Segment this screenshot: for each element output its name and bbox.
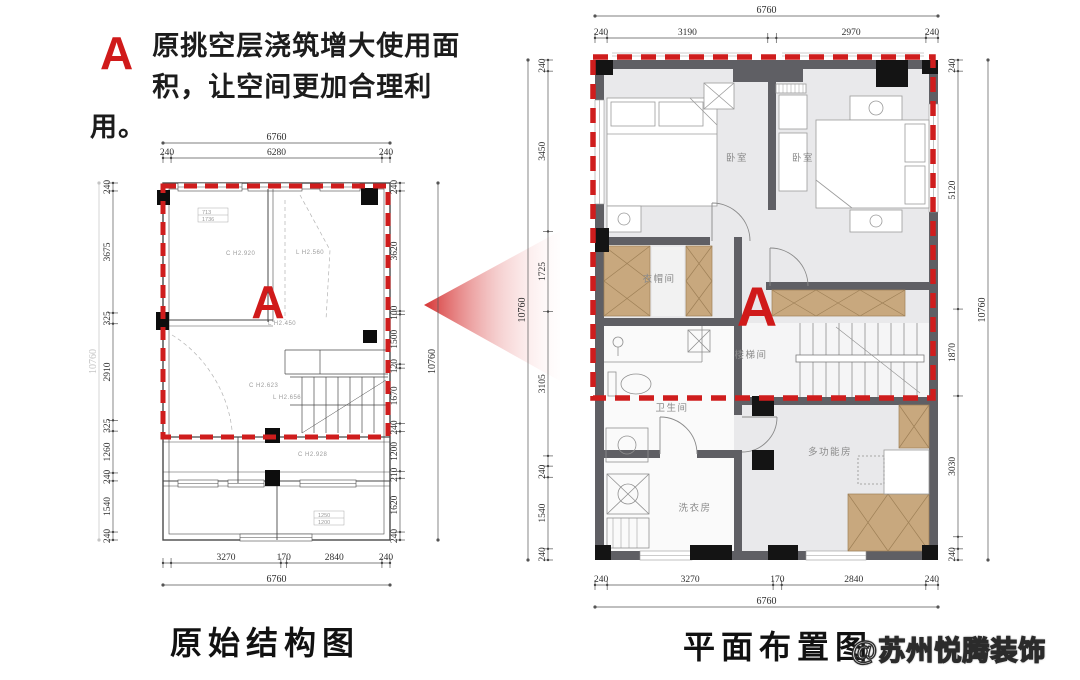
dim-label: 240: [379, 553, 394, 563]
dim-dot: [162, 562, 164, 564]
dim-label: 325: [103, 418, 113, 433]
ch-note: L H2.560: [296, 250, 324, 256]
dim-label: 240: [160, 148, 175, 158]
dim-total-label: 6760: [267, 574, 287, 585]
dim-label: 1200: [390, 442, 400, 461]
dim-dot: [547, 230, 549, 232]
dim-dot: [436, 538, 439, 541]
dim-dot: [957, 536, 959, 538]
room-label: 卧室: [792, 152, 814, 164]
dim-label: 1670: [390, 386, 400, 405]
dim-dot: [170, 562, 172, 564]
ch-note: L H2.450: [268, 321, 296, 327]
dim-label: 170: [277, 553, 292, 563]
dim-label: 240: [538, 464, 548, 479]
annotation-text: 原挑空层浇筑增大使用面积，让空间更加合理利用。: [90, 31, 460, 142]
dim-label: 2840: [325, 553, 344, 563]
dim-dot: [388, 583, 391, 586]
dim-label: 325: [103, 311, 113, 326]
dim-dot: [547, 455, 549, 457]
dim-label: 1500: [390, 330, 400, 349]
dim-label: 3270: [216, 553, 235, 563]
dim-dot: [775, 37, 777, 39]
dim-label: 240: [390, 180, 400, 195]
dim-label: 240: [379, 148, 394, 158]
dim-label: 240: [103, 180, 113, 195]
dim-dot: [593, 14, 596, 17]
dim-label: 120: [390, 359, 400, 374]
dim-label: 1725: [538, 262, 548, 281]
right-plan-title: 平面布置图: [683, 622, 873, 668]
arrow-right-to-left: [424, 231, 560, 381]
ch-note: C H2.623: [249, 383, 279, 389]
note-box1-line1: 713: [202, 210, 211, 216]
dim-label: 2840: [844, 575, 863, 585]
dim-label: 170: [770, 575, 785, 585]
dim-label: 240: [948, 58, 958, 73]
dim-total-label: 10760: [427, 349, 438, 374]
dim-dot: [526, 58, 529, 61]
dim-dot: [767, 37, 769, 39]
room-label: 卫生间: [655, 402, 688, 414]
room-label: 衣帽间: [642, 273, 675, 285]
dim-label: 1620: [390, 495, 400, 514]
note-box2-line2: 1200: [318, 520, 330, 526]
dim-dot: [97, 538, 100, 541]
dim-label: 3675: [103, 242, 113, 261]
left-plan-drawing: [156, 183, 390, 541]
dim-label: 240: [594, 28, 609, 38]
dim-dot: [547, 310, 549, 312]
note-box2-line1: 1250: [318, 513, 330, 519]
dim-dot: [936, 605, 939, 608]
dim-dot: [957, 308, 959, 310]
dim-label: 3105: [538, 374, 548, 393]
dim-dot: [526, 558, 529, 561]
dim-label: 2970: [842, 28, 861, 38]
ch-note: C H2.920: [226, 251, 256, 257]
dim-label: 240: [390, 529, 400, 544]
room-label: 楼梯间: [734, 349, 767, 361]
dim-total-label: 10760: [977, 298, 988, 323]
dim-dot: [986, 558, 989, 561]
dim-dot: [957, 395, 959, 397]
note-box1-line2: 1736: [202, 217, 214, 223]
dim-total-label: 6760: [757, 596, 777, 607]
dim-label: 2910: [103, 362, 113, 381]
ch-note: C H2.928: [298, 452, 328, 458]
dim-label: 240: [538, 58, 548, 73]
dim-label: 240: [390, 420, 400, 435]
dim-label: 3620: [390, 241, 400, 260]
left-plan-stairs: [290, 377, 388, 433]
left-plan-columns: [156, 188, 378, 486]
dim-label: 240: [925, 575, 940, 585]
room-label: 多功能房: [808, 446, 852, 458]
dim-label: 240: [948, 547, 958, 562]
dim-label: 240: [925, 28, 940, 38]
dim-label: 3190: [678, 28, 697, 38]
ch-note: L H2.656: [273, 395, 301, 401]
dim-label: 240: [538, 547, 548, 562]
dim-dot: [436, 181, 439, 184]
dim-label: 3450: [538, 142, 548, 161]
dim-label: 5120: [948, 180, 958, 199]
dim-dot: [593, 605, 596, 608]
dim-dot: [97, 181, 100, 184]
dim-label: 240: [103, 529, 113, 544]
annotation-marker-a: A: [100, 30, 134, 76]
dim-total-label: 10760: [517, 298, 528, 323]
dim-dot: [986, 58, 989, 61]
dim-label: 3270: [681, 575, 700, 585]
dim-label: 100: [390, 305, 400, 320]
dim-total-label: 6760: [757, 5, 777, 16]
dim-dot: [161, 583, 164, 586]
dim-label: 1540: [538, 503, 548, 522]
annotation-block: A 原挑空层浇筑增大使用面积，让空间更加合理利用。: [90, 26, 472, 148]
left-plan-title: 原始结构图: [170, 618, 360, 664]
dim-total-label: 10760: [88, 349, 99, 374]
dim-dot: [936, 14, 939, 17]
dim-label: 3030: [948, 457, 958, 476]
right-plan-marker-a: A: [737, 275, 777, 338]
room-label: 洗衣房: [678, 502, 711, 514]
watermark: @苏州悦腾装饰: [851, 629, 1046, 668]
dim-label: 1540: [103, 497, 113, 516]
dim-label: 240: [594, 575, 609, 585]
room-label: 卧室: [726, 152, 748, 164]
dim-label: 210: [390, 467, 400, 482]
dim-label: 1260: [103, 442, 113, 461]
dim-label: 6280: [267, 148, 286, 158]
floorplan-comparison-page: 713 1736 1250 1200: [0, 0, 1080, 680]
dim-label: 240: [103, 470, 113, 485]
dim-label: 1870: [948, 343, 958, 362]
